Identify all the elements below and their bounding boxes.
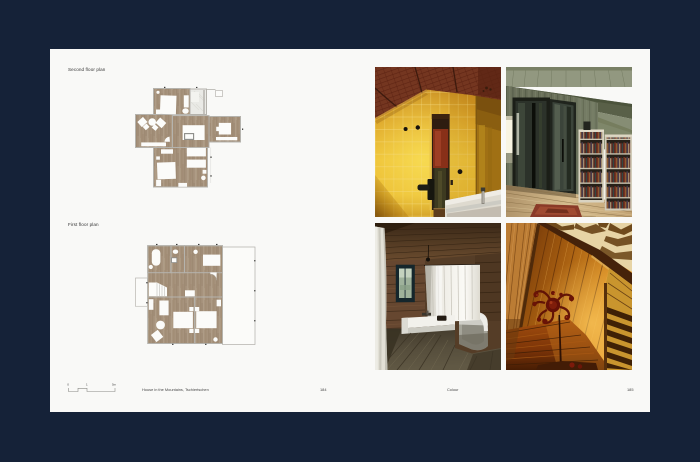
svg-text:1: 1 — [86, 383, 88, 387]
svg-text:5m: 5m — [112, 383, 117, 387]
svg-text:0: 0 — [67, 383, 69, 387]
